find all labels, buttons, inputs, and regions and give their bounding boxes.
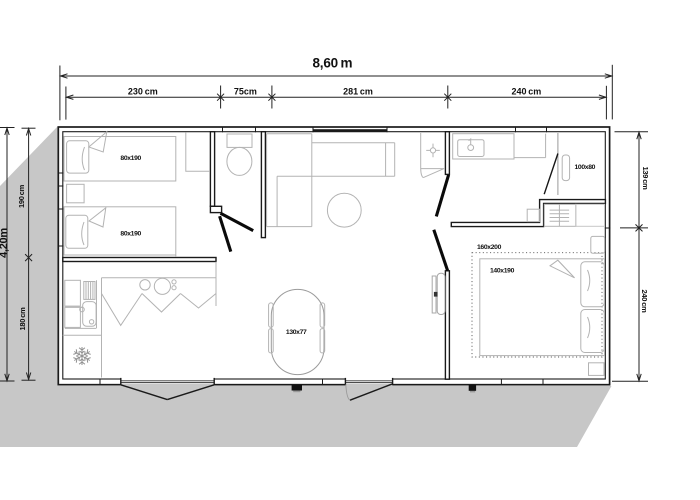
svg-text:180 cm: 180 cm <box>18 307 27 331</box>
svg-text:75cm: 75cm <box>234 86 257 96</box>
svg-text:130x77: 130x77 <box>286 329 307 336</box>
svg-text:230 cm: 230 cm <box>128 86 158 96</box>
svg-text:240 cm: 240 cm <box>640 289 649 313</box>
svg-text:139 cm: 139 cm <box>641 166 650 190</box>
svg-text:240 cm: 240 cm <box>511 86 541 96</box>
svg-text:140x190: 140x190 <box>490 268 515 275</box>
svg-text:4,20m: 4,20m <box>0 228 10 258</box>
svg-text:8,60 m: 8,60 m <box>313 56 353 71</box>
svg-text:80x190: 80x190 <box>120 230 141 237</box>
svg-text:190 cm: 190 cm <box>17 184 26 208</box>
svg-text:160x200: 160x200 <box>477 244 502 251</box>
svg-text:100x80: 100x80 <box>575 164 596 171</box>
svg-text:281 cm: 281 cm <box>343 86 373 96</box>
svg-text:80x190: 80x190 <box>120 155 141 162</box>
